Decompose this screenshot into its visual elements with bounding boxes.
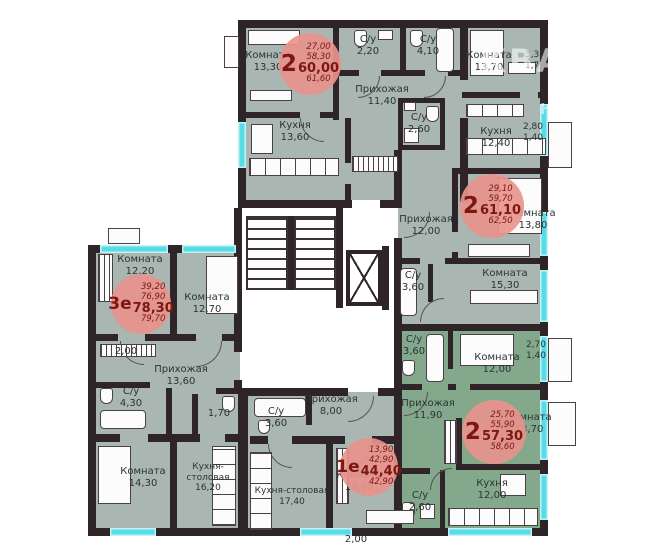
window — [110, 528, 156, 536]
room-label: С/у2,60 — [389, 112, 449, 135]
apartment-badge[interactable]: 2 25,7055,9057,3058,60 — [462, 400, 526, 464]
exterior-ac-unit — [108, 228, 140, 244]
wall — [381, 70, 425, 76]
wall — [192, 394, 198, 436]
room-label: Прихожая12,00 — [386, 214, 466, 237]
room-label: Комната15,30 — [465, 268, 545, 291]
wall — [398, 468, 430, 474]
dimension-label: 1,70 — [199, 408, 239, 420]
wall — [238, 200, 352, 208]
window — [540, 474, 548, 520]
balcony-label: 2,801,40 — [514, 122, 552, 143]
wall — [96, 334, 118, 341]
room-label: С/у2,20 — [338, 34, 398, 57]
fixture-kitchen-counter — [466, 104, 524, 117]
apartment-badge[interactable]: 1е 13,9042,9044,4042,90 — [340, 438, 398, 496]
apartment-rooms-count: 2 — [281, 51, 297, 77]
wall — [250, 436, 268, 444]
apartment-badge[interactable]: 2 29,1059,7061,1062,50 — [460, 174, 524, 238]
wall — [96, 434, 120, 442]
wall — [88, 245, 96, 536]
room-label: Прихожая13,60 — [141, 364, 221, 387]
floor-plan: Комната13,30 С/у2,20 С/у4,10 Прихожая11,… — [0, 0, 652, 543]
wall — [470, 384, 548, 390]
room-label: Прихожая11,40 — [342, 84, 422, 107]
room-label: Прихожая11,90 — [388, 398, 468, 421]
wall — [245, 112, 300, 118]
room-label: С/у3,60 — [384, 334, 444, 357]
apartment-rooms-count: 1е — [336, 457, 359, 477]
wall — [145, 334, 196, 341]
fixture-bathtub — [100, 410, 146, 429]
staircase — [246, 216, 288, 290]
dimension-label: 2,00 — [106, 346, 146, 358]
room-label: С/у3,60 — [383, 270, 443, 293]
fixture-dresser — [468, 244, 530, 257]
balcony-label: 2,701,40 — [517, 340, 555, 361]
window — [448, 528, 532, 536]
apartment-badge[interactable]: 3е 39,2076,9078,3079,70 — [111, 274, 171, 334]
wall — [452, 168, 548, 174]
fixture-dresser — [250, 90, 292, 101]
watermark-brand: КВАРТАЛ — [480, 42, 652, 80]
wall — [242, 20, 548, 28]
room-label: С/у4,30 — [101, 386, 161, 409]
window — [238, 122, 246, 168]
wall — [398, 384, 422, 390]
fixture-wardrobe — [352, 156, 398, 172]
wall — [339, 70, 359, 76]
window — [182, 245, 236, 253]
wall — [345, 118, 351, 163]
window — [100, 245, 168, 253]
apartment-rooms-count: 2 — [463, 193, 479, 219]
wall — [462, 92, 520, 98]
wall — [448, 384, 456, 390]
room-label: Комната14,30 — [103, 466, 183, 489]
watermark-subtitle: НЕДВИЖИМОСТЬ — [540, 100, 652, 118]
wall — [148, 434, 200, 442]
fixture-kitchen-counter — [249, 158, 339, 176]
wall — [538, 92, 548, 98]
wall — [166, 388, 172, 438]
apartment-rooms-count: 3е — [108, 294, 131, 314]
room-label: Кухня12,00 — [452, 478, 532, 501]
wall — [398, 324, 548, 331]
fixture-wardrobe — [444, 420, 457, 464]
wall — [462, 464, 548, 470]
apartment-rooms-count: 2 — [465, 419, 481, 445]
fixture-dresser — [470, 290, 538, 304]
wall — [225, 434, 240, 442]
wall — [336, 208, 343, 308]
wall — [445, 258, 548, 264]
wall — [292, 436, 345, 444]
wall — [222, 334, 240, 341]
room-label: Кухня-столовая16,20 — [182, 462, 234, 494]
dimension-label: 2,00 — [336, 534, 376, 543]
room-label: Комната12,70 — [167, 292, 247, 315]
wall — [216, 388, 240, 394]
elevator — [346, 250, 382, 306]
wall — [448, 331, 453, 369]
fixture-kitchen-counter — [448, 508, 538, 526]
room-label: Кухня13,60 — [255, 120, 335, 143]
wall — [398, 145, 445, 150]
wall — [345, 184, 351, 202]
staircase — [294, 216, 336, 290]
fixture-toilet — [402, 360, 415, 376]
wall — [170, 442, 177, 536]
room-label: Прихожая8,00 — [291, 394, 371, 417]
room-label: С/у2,60 — [390, 490, 450, 513]
stair-rail — [288, 216, 294, 290]
apartment-badge[interactable]: 2 27,0058,3060,0061,60 — [279, 33, 341, 95]
wall — [398, 258, 420, 264]
